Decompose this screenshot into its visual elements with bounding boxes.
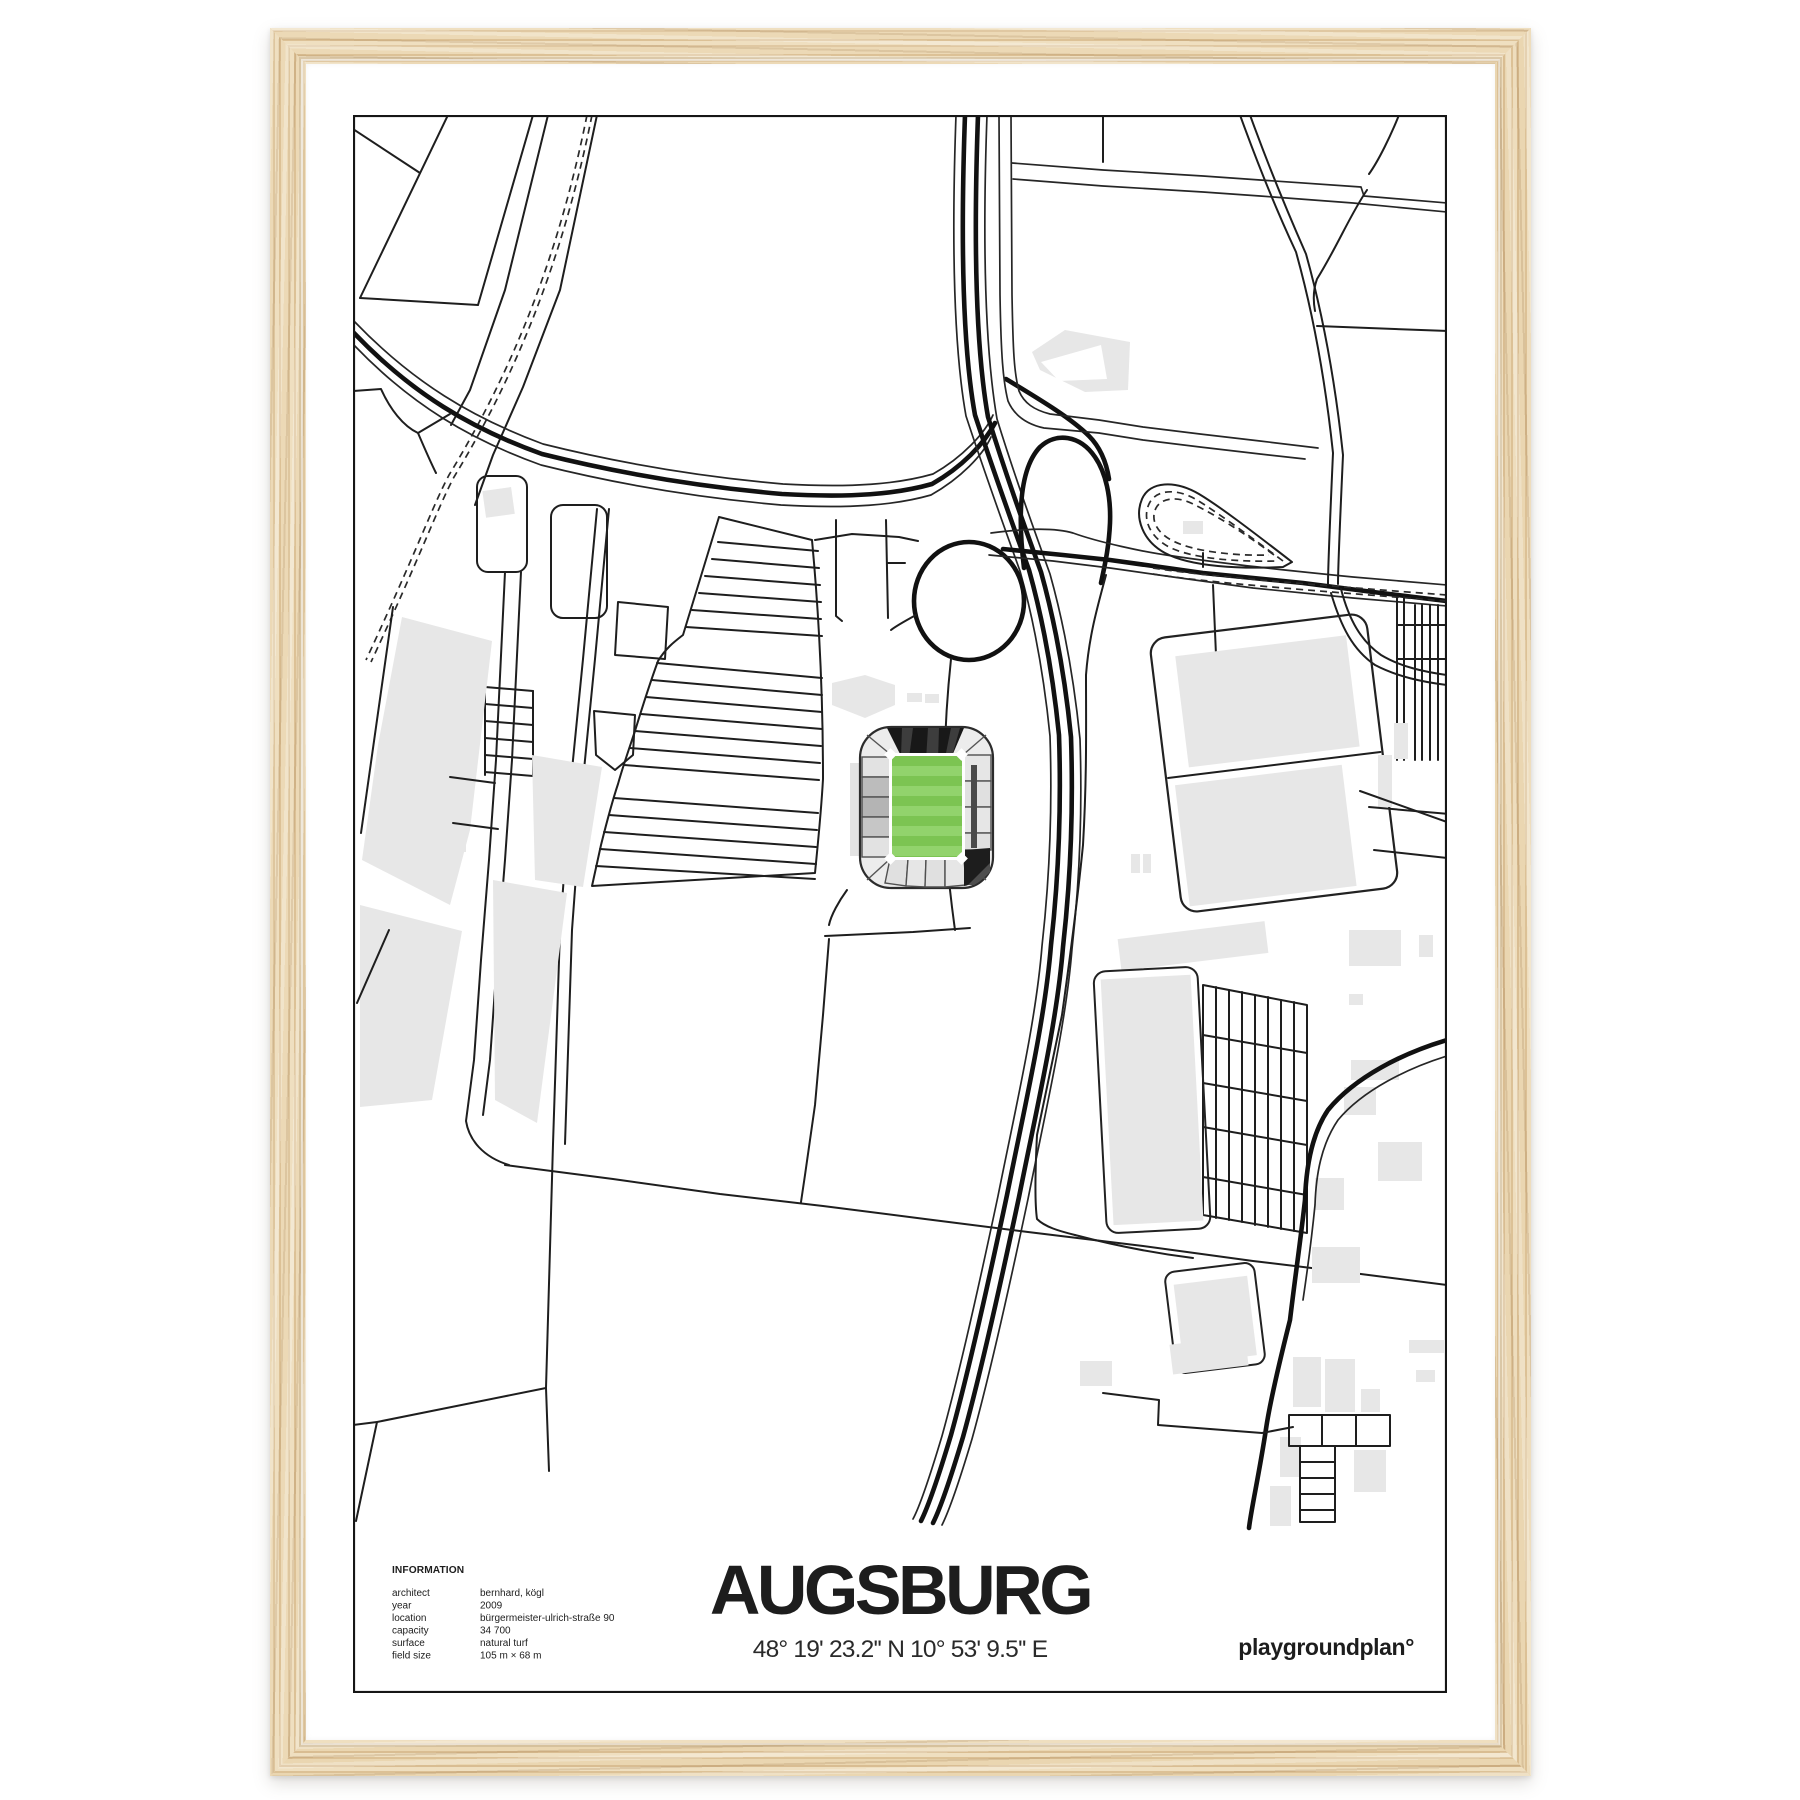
svg-text:capacity: capacity [392, 1626, 429, 1637]
svg-text:architect: architect [392, 1588, 430, 1599]
svg-text:INFORMATION: INFORMATION [392, 1565, 464, 1576]
svg-text:playgroundplan°: playgroundplan° [1238, 1634, 1414, 1660]
svg-text:location: location [392, 1613, 426, 1624]
svg-text:2009: 2009 [480, 1601, 503, 1612]
svg-text:year: year [392, 1601, 412, 1612]
svg-text:AUGSBURG: AUGSBURG [710, 1551, 1090, 1629]
svg-text:bürgermeister-ulrich-straße 90: bürgermeister-ulrich-straße 90 [480, 1613, 615, 1624]
svg-text:105 m × 68 m: 105 m × 68 m [480, 1651, 541, 1662]
svg-text:natural turf: natural turf [480, 1638, 528, 1649]
svg-text:bernhard, kögl: bernhard, kögl [480, 1588, 544, 1599]
svg-text:34 700: 34 700 [480, 1626, 511, 1637]
svg-text:field size: field size [392, 1651, 431, 1662]
svg-text:48° 19' 23.2'' N 10° 53' 9.5': 48° 19' 23.2'' N 10° 53' 9.5'' E [753, 1636, 1048, 1663]
svg-text:surface: surface [392, 1638, 425, 1649]
